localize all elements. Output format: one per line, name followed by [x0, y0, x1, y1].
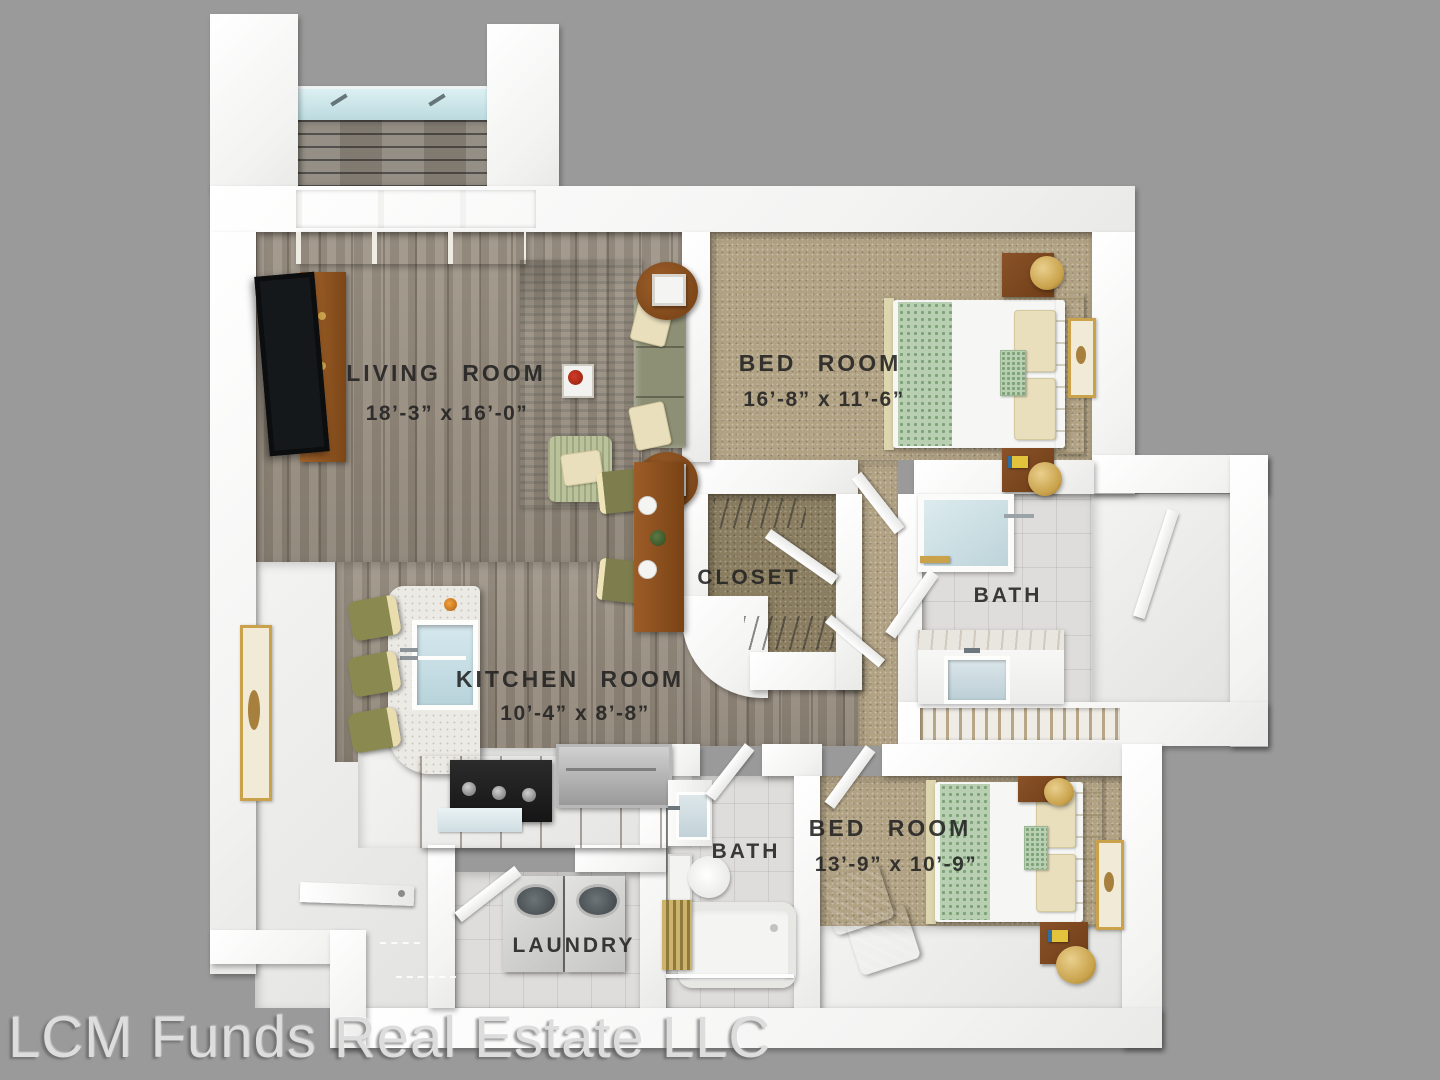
- bedroom1-dimensions: 16’-8” x 11’-6”: [743, 388, 904, 412]
- living-room-dimensions: 18’-3” x 16’-0”: [366, 402, 529, 426]
- labels-layer: LIVING ROOM 18’-3” x 16’-0” BED ROOM 16’…: [0, 0, 1440, 1080]
- bath2-label: BATH: [712, 840, 781, 864]
- closet-label: CLOSET: [697, 566, 800, 590]
- living-room-label: LIVING ROOM: [346, 360, 546, 387]
- bedroom1-label: BED ROOM: [739, 350, 902, 377]
- bedroom2-dimensions: 13’-9” x 10’-9”: [815, 853, 978, 877]
- watermark-text: LCM Funds Real Estate LLC: [8, 1004, 771, 1071]
- bedroom2-label: BED ROOM: [809, 815, 972, 842]
- floor-plan-render: LIVING ROOM 18’-3” x 16’-0” BED ROOM 16’…: [0, 0, 1440, 1080]
- kitchen-dimensions: 10’-4” x 8’-8”: [500, 702, 649, 726]
- kitchen-label: KITCHEN ROOM: [456, 666, 684, 693]
- bath1-label: BATH: [974, 584, 1043, 608]
- laundry-label: LAUNDRY: [513, 934, 636, 958]
